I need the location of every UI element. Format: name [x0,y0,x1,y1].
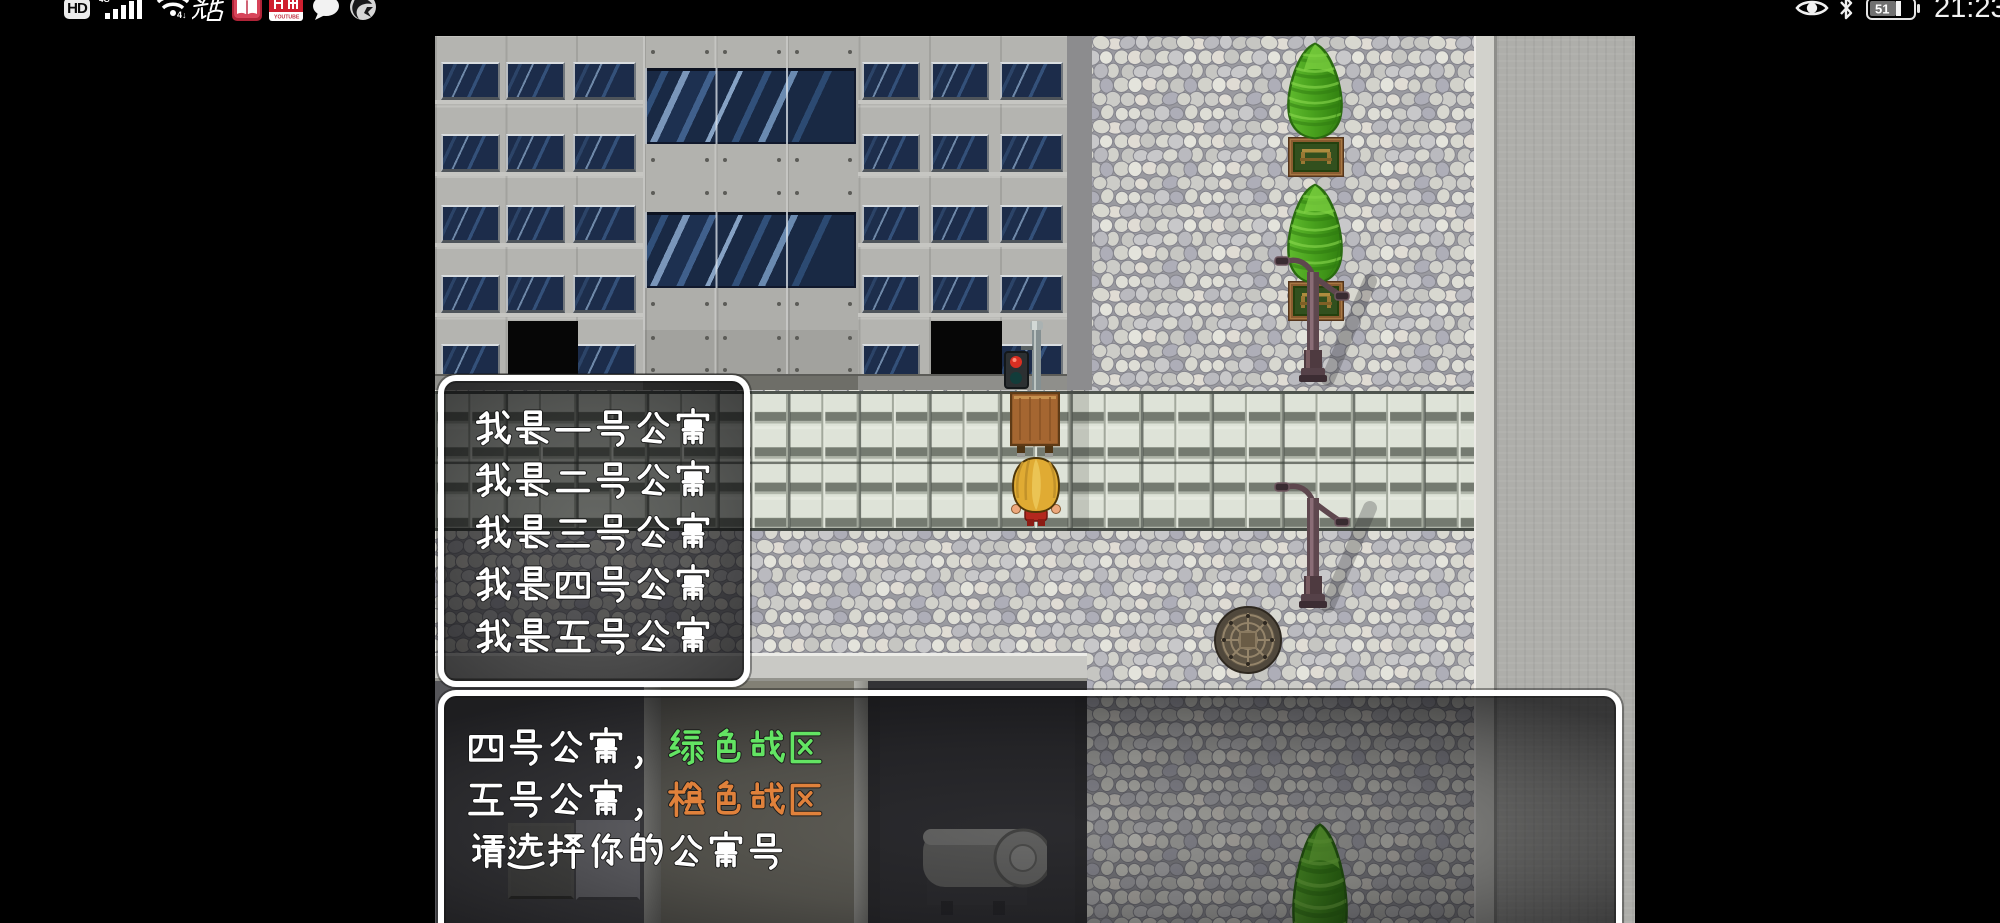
svg-text:4G: 4G [99,0,110,4]
svg-text:YOUTUBE: YOUTUBE [274,15,300,21]
svg-text:4↓: 4↓ [177,10,187,20]
svg-text:51: 51 [1875,2,1889,17]
